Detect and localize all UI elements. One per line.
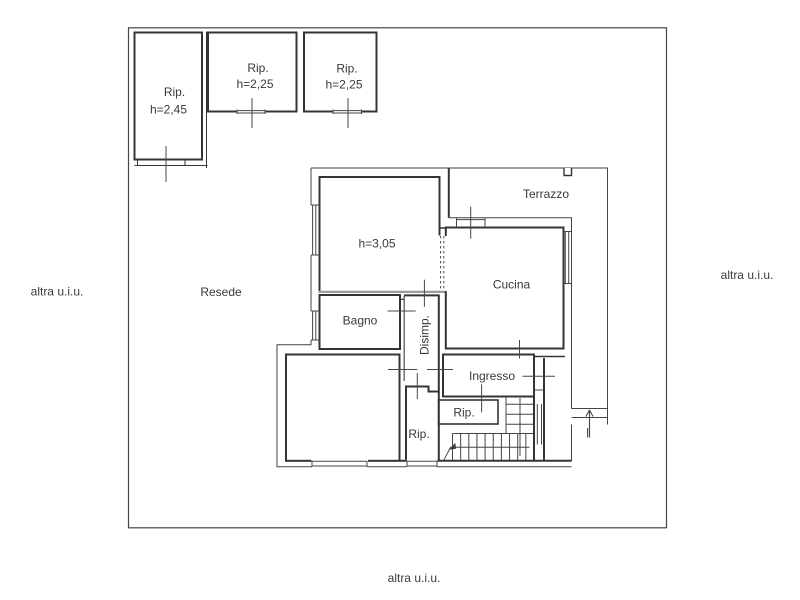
svg-text:Bagno: Bagno <box>343 314 378 328</box>
svg-text:altra u.i.u.: altra u.i.u. <box>721 268 774 282</box>
svg-text:Rip.: Rip. <box>164 85 185 99</box>
svg-text:Resede: Resede <box>200 285 242 299</box>
svg-text:Disimp.: Disimp. <box>418 315 432 355</box>
svg-text:Ingresso: Ingresso <box>469 369 515 383</box>
svg-text:Rip.: Rip. <box>453 406 474 420</box>
svg-text:altra u.i.u.: altra u.i.u. <box>388 571 441 585</box>
svg-text:h=3,05: h=3,05 <box>358 237 395 251</box>
svg-text:Rip.: Rip. <box>247 61 268 75</box>
svg-text:h=2,25: h=2,25 <box>325 78 362 92</box>
svg-text:Terrazzo: Terrazzo <box>523 187 569 201</box>
svg-text:Rip.: Rip. <box>408 427 429 441</box>
svg-text:h=2,45: h=2,45 <box>150 103 187 117</box>
svg-text:Cucina: Cucina <box>493 278 531 292</box>
svg-text:h=2,25: h=2,25 <box>236 77 273 91</box>
svg-text:Rip.: Rip. <box>336 62 357 76</box>
svg-text:altra u.i.u.: altra u.i.u. <box>31 285 84 299</box>
